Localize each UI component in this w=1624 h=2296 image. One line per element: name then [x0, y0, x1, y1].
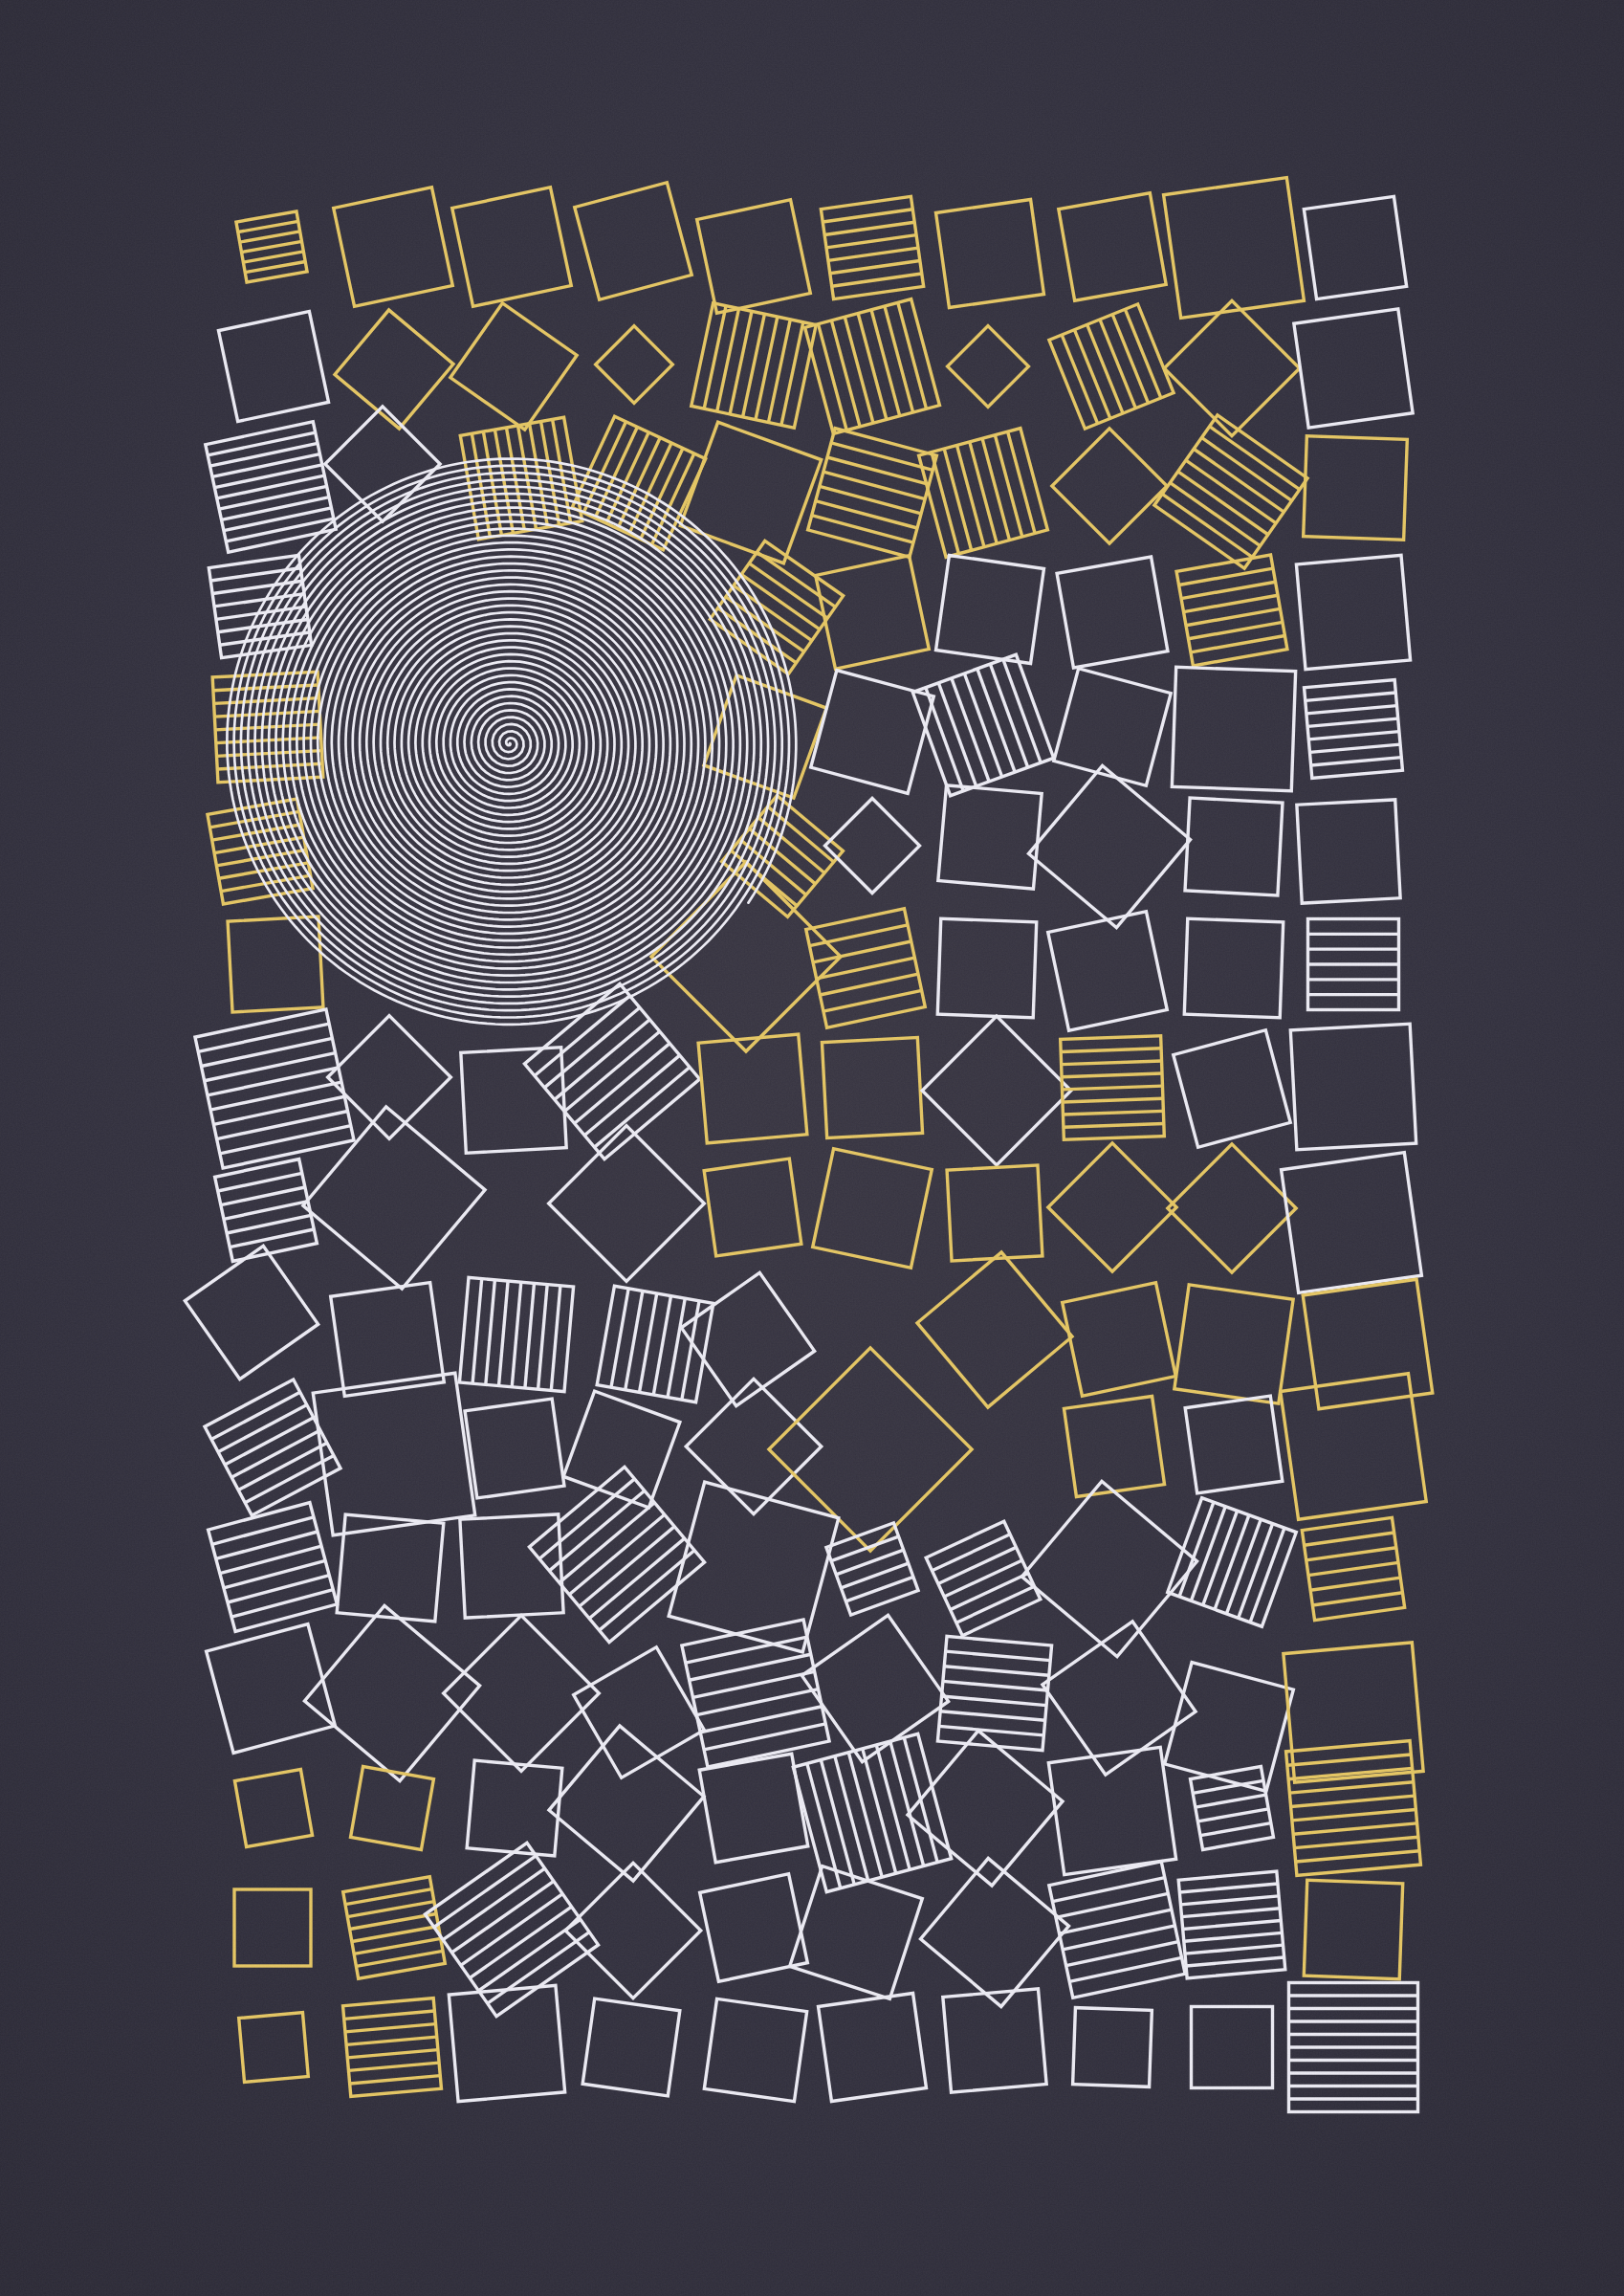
grain-overlay-dark: [0, 0, 1624, 2296]
artwork-svg: [0, 0, 1624, 2296]
poster-canvas: [0, 0, 1624, 2296]
